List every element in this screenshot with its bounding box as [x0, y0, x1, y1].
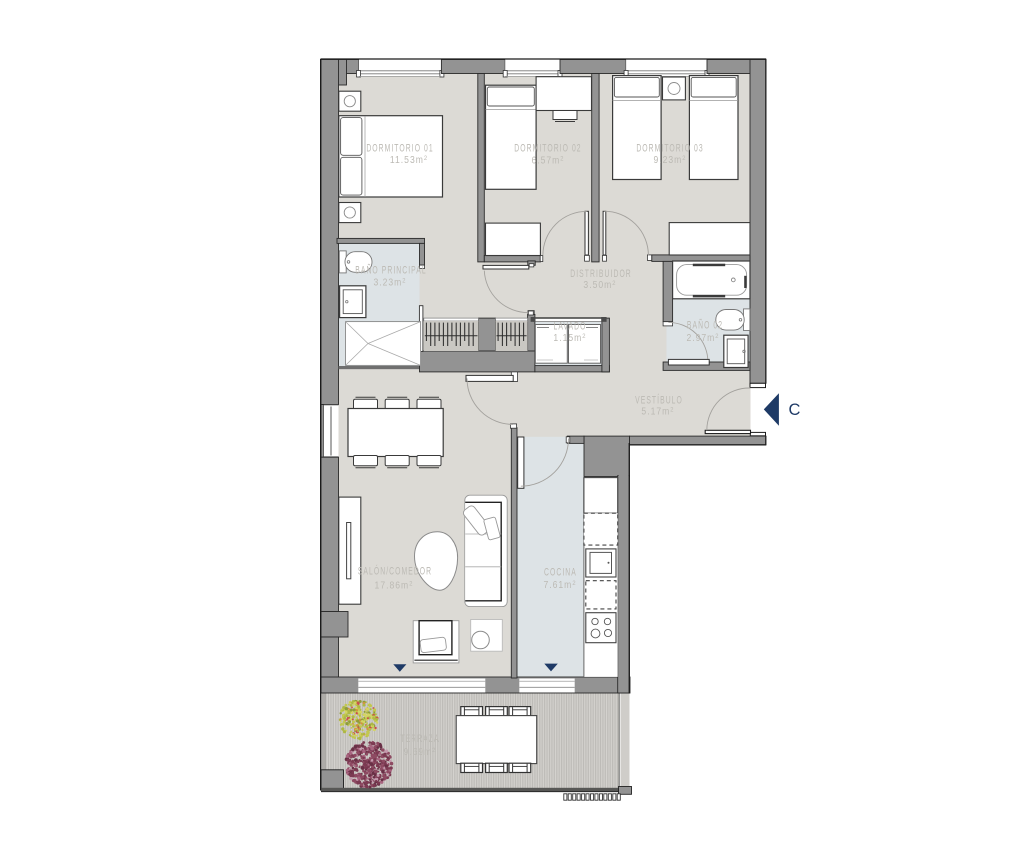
svg-text:BAÑO 02: BAÑO 02 [687, 319, 723, 331]
svg-text:SALÓN/COMEDOR: SALÓN/COMEDOR [358, 565, 432, 577]
svg-text:3.23m2: 3.23m2 [373, 277, 406, 288]
svg-text:DISTRIBUIDOR: DISTRIBUIDOR [570, 267, 632, 279]
svg-text:2.97m2: 2.97m2 [686, 332, 719, 343]
svg-text:11.53m2: 11.53m2 [390, 154, 428, 165]
svg-text:DORMITORIO 02: DORMITORIO 02 [514, 142, 581, 154]
svg-text:7.61m2: 7.61m2 [543, 579, 576, 590]
svg-text:C: C [789, 401, 801, 419]
svg-text:LAVADO: LAVADO [553, 320, 586, 332]
svg-text:TERRAZA: TERRAZA [400, 732, 439, 744]
svg-text:17.86m2: 17.86m2 [375, 580, 414, 591]
svg-text:BAÑO PRINCIPAL: BAÑO PRINCIPAL [355, 264, 426, 276]
svg-text:DORMITORIO 03: DORMITORIO 03 [636, 142, 703, 154]
svg-text:VESTÍBULO: VESTÍBULO [635, 394, 683, 406]
svg-text:3.50m2: 3.50m2 [583, 279, 616, 290]
svg-text:5.17m2: 5.17m2 [641, 406, 674, 417]
svg-text:1.15m2: 1.15m2 [553, 332, 586, 343]
svg-text:9.69m2: 9.69m2 [403, 746, 436, 757]
svg-text:DORMITORIO 01: DORMITORIO 01 [366, 142, 433, 154]
svg-text:6.57m2: 6.57m2 [531, 155, 564, 166]
svg-text:9.23m2: 9.23m2 [653, 154, 686, 165]
svg-text:COCINA: COCINA [544, 566, 577, 578]
